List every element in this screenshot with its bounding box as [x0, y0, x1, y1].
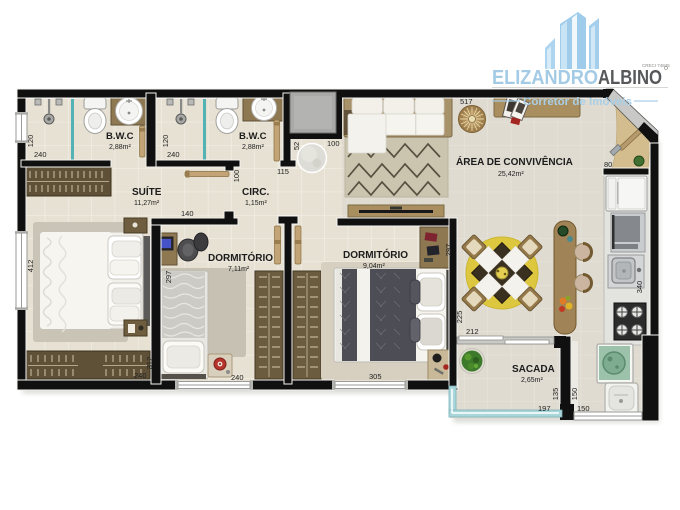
- svg-text:212: 212: [466, 327, 479, 336]
- svg-text:150: 150: [577, 404, 590, 413]
- svg-text:305: 305: [369, 372, 382, 381]
- svg-text:ÁREA DE CONVIVÊNCIA: ÁREA DE CONVIVÊNCIA: [456, 155, 573, 168]
- svg-text:517: 517: [460, 97, 473, 106]
- svg-text:CIRC.: CIRC.: [242, 187, 269, 198]
- svg-text:25,42m²: 25,42m²: [498, 171, 524, 178]
- svg-text:7,11m²: 7,11m²: [228, 266, 250, 273]
- svg-text:1,15m²: 1,15m²: [245, 200, 267, 207]
- svg-text:412: 412: [26, 260, 35, 273]
- svg-text:CRECI 74845: CRECI 74845: [642, 63, 670, 68]
- svg-text:100: 100: [232, 170, 241, 183]
- svg-text:240: 240: [34, 150, 47, 159]
- svg-text:312: 312: [145, 357, 154, 370]
- svg-text:Corretor de Imóveis: Corretor de Imóveis: [523, 96, 632, 108]
- svg-text:240: 240: [134, 371, 147, 380]
- svg-text:120: 120: [26, 135, 35, 148]
- svg-text:340: 340: [635, 281, 644, 294]
- svg-text:11,27m²: 11,27m²: [134, 200, 160, 207]
- svg-text:B.W.C: B.W.C: [106, 131, 134, 142]
- svg-text:100: 100: [327, 139, 340, 148]
- svg-text:240: 240: [167, 150, 180, 159]
- svg-text:ELIZANDROALBINO: ELIZANDROALBINO: [492, 67, 662, 89]
- svg-text:115: 115: [277, 167, 289, 176]
- svg-text:150: 150: [570, 388, 579, 401]
- svg-text:297: 297: [164, 271, 173, 284]
- svg-text:225: 225: [455, 311, 464, 324]
- svg-text:9,04m²: 9,04m²: [363, 263, 385, 270]
- svg-text:DORMITÓRIO: DORMITÓRIO: [208, 251, 273, 264]
- svg-text:120: 120: [161, 135, 170, 148]
- svg-text:2,88m²: 2,88m²: [242, 144, 264, 151]
- svg-text:SACADA: SACADA: [512, 364, 555, 375]
- svg-text:2,65m²: 2,65m²: [521, 377, 543, 384]
- svg-text:52: 52: [292, 142, 301, 150]
- svg-text:SUÍTE: SUÍTE: [132, 185, 162, 198]
- svg-text:B.W.C: B.W.C: [239, 131, 267, 142]
- svg-text:2,88m²: 2,88m²: [109, 144, 131, 151]
- svg-text:DORMITÓRIO: DORMITÓRIO: [343, 248, 408, 261]
- svg-text:135: 135: [551, 388, 560, 401]
- svg-text:197: 197: [538, 404, 551, 413]
- svg-text:140: 140: [181, 209, 194, 218]
- svg-text:80: 80: [604, 160, 612, 169]
- svg-text:240: 240: [231, 373, 244, 382]
- svg-text:297: 297: [444, 244, 453, 257]
